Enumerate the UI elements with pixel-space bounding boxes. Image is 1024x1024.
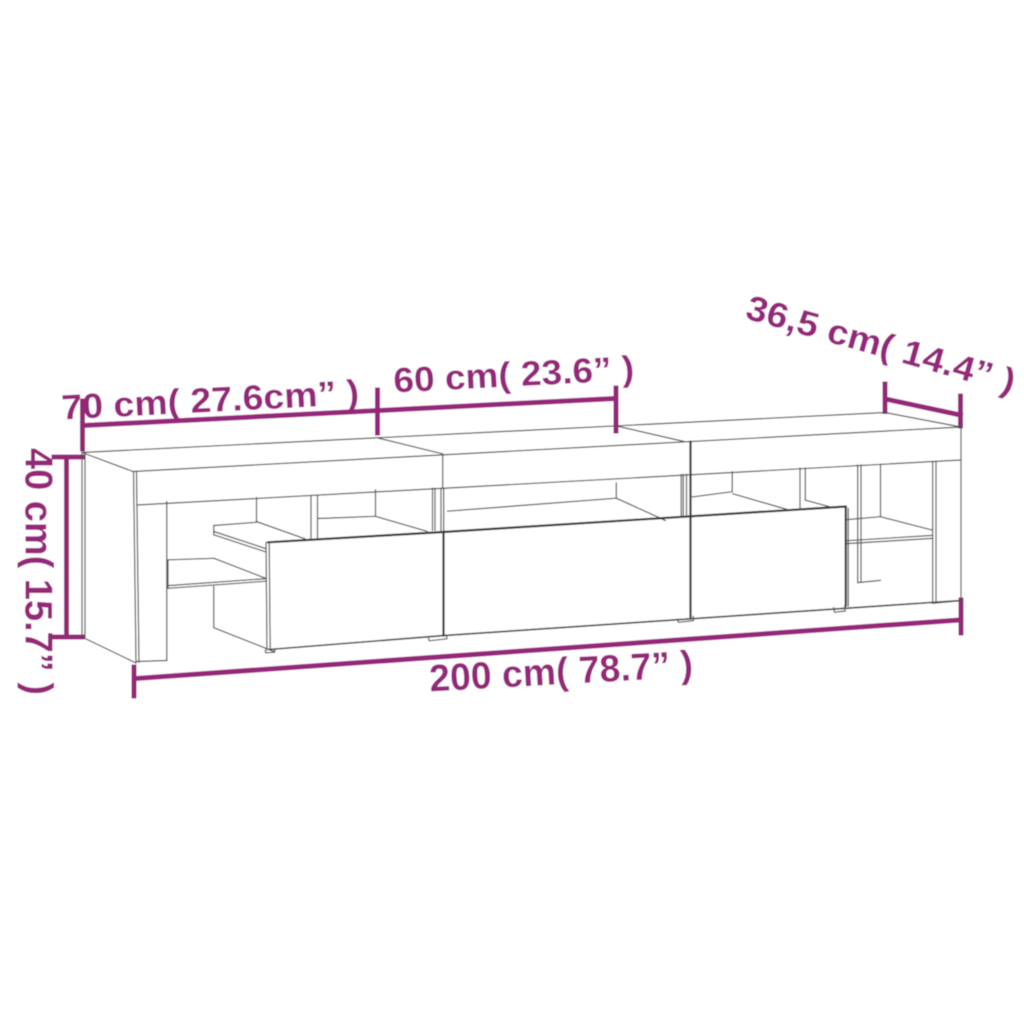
svg-text:40 cm( 15.7” ): 40 cm( 15.7” ) (17, 448, 60, 695)
